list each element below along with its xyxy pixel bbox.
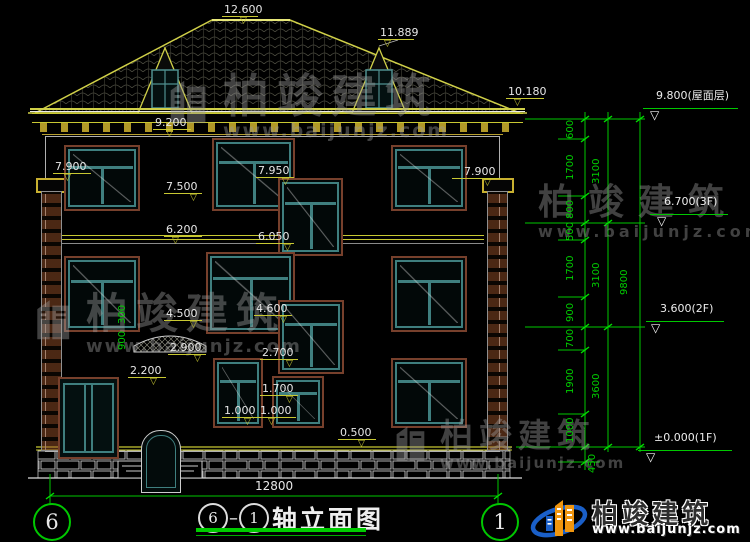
overall-dimension-label: 12800 [255,479,293,493]
window-2f-right [391,256,467,332]
elevation-mark-value: 7.900 [464,166,496,177]
elevation-mark-triangle: ▽ [166,130,173,139]
watermark: 柏竣建筑 www.baijunjz.com [165,72,449,142]
dimension-text: 1000 [566,407,576,453]
elevation-mark-line [452,178,500,179]
elevation-mark-value: 7.900 [55,161,87,172]
title-underline-thick [196,528,366,532]
axis-bubble-1: 1 [481,503,519,541]
elevation-mark-value: 7.950 [258,165,290,176]
elevation-mark-triangle: ▽ [190,321,197,330]
side-door [58,377,119,459]
level-triangle: ▽ [657,215,666,227]
elevation-mark-value: 12.600 [224,4,263,15]
main-entrance-door [141,430,181,493]
axis-number: 1 [493,510,506,534]
company-logo-icon [529,496,589,542]
level-label: 3.600(2F) [660,303,713,315]
elevation-mark-value: 4.600 [256,303,288,314]
elevation-mark-triangle: ▽ [268,418,275,427]
cad-elevation-drawing: 柏竣建筑 www.baijunjz.com 柏竣建筑 www.baijunjz.… [0,0,750,542]
elevation-mark-value: 2.700 [262,347,294,358]
elevation-mark-value: 2.900 [170,342,202,353]
elevation-mark-line [222,417,258,418]
elevation-mark-value: 10.180 [508,86,547,97]
axis-number: 6 [45,510,58,534]
elevation-mark-triangle: ▽ [244,418,251,427]
elevation-mark-value: 6.050 [258,231,290,242]
dimension-text: 3100 [592,252,602,298]
axis-bubble-6: 6 [33,503,71,541]
dimension-text: 9800 [620,259,630,305]
elevation-mark-line [164,236,202,237]
dimension-text: 3600 [592,363,602,409]
elevation-mark-triangle: ▽ [190,194,197,203]
elevation-mark-value: 9.200 [155,117,187,128]
elevation-mark-value: 0.500 [340,427,372,438]
elevation-mark-triangle: ▽ [280,316,287,325]
elevation-mark-value: 1.000 [224,405,256,416]
company-logo-url: www.baijunjz.com [592,522,741,537]
level-label: 9.800(屋面层) [656,90,729,102]
level-triangle: ▽ [651,322,660,334]
elevation-mark-triangle: ▽ [240,17,247,26]
elevation-mark-triangle: ▽ [484,179,491,188]
dimension-text: 1900 [566,358,576,404]
elevation-mark-triangle: ▽ [172,237,179,246]
elevation-mark-line [53,173,91,174]
watermark-brand: 柏竣建筑 [223,72,449,120]
dimension-text: 1700 [566,144,576,190]
elevation-mark-value: 1.700 [262,383,294,394]
elevation-mark-triangle: ▽ [358,440,365,449]
elevation-mark-triangle: ▽ [150,378,157,387]
level-label: ±0.000(1F) [654,432,717,444]
watermark-url: www.baijunjz.com [223,120,449,142]
title-underline-thin [196,535,366,536]
elevation-mark-line [506,98,544,99]
window-3f-left [64,145,140,211]
dimension-text: 700 [566,315,576,361]
elevation-mark-triangle: ▽ [384,40,391,49]
elevation-mark-triangle: ▽ [282,178,289,187]
dimension-text: 450 [588,440,598,486]
elevation-mark-value: 1.000 [260,405,292,416]
elevation-mark-triangle: ▽ [514,99,521,108]
elevation-mark-triangle: ▽ [194,355,201,364]
elevation-mark-value: 11.889 [380,27,419,38]
elevation-mark-line [128,377,166,378]
level-label: 6.700(3F) [664,196,717,208]
title-dash: – [229,508,238,529]
level-triangle: ▽ [646,451,655,463]
pilaster-right [487,191,508,451]
level-triangle: ▽ [650,109,659,121]
elevation-mark-value: 4.500 [166,308,198,319]
elevation-mark-value: 2.200 [130,365,162,376]
elevation-mark-line [338,439,376,440]
elevation-mark-triangle: ▽ [64,174,71,183]
elevation-mark-triangle: ▽ [286,360,293,369]
elevation-mark-line [258,417,296,418]
dimension-text: 3100 [592,148,602,194]
dimension-text: 1700 [566,245,576,291]
elevation-mark-value: 6.200 [166,224,198,235]
elevation-mark-triangle: ▽ [284,244,291,253]
dimension-text: 900 [118,317,128,363]
elevation-mark-value: 7.500 [166,181,198,192]
